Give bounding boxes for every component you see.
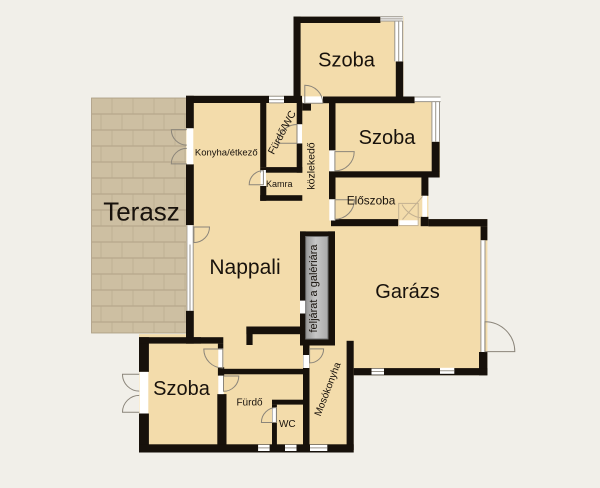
svg-text:WC: WC [279, 419, 296, 430]
svg-text:Szoba: Szoba [153, 378, 211, 400]
svg-text:Terasz: Terasz [103, 196, 180, 226]
svg-text:Szoba: Szoba [359, 127, 417, 149]
svg-text:Szoba: Szoba [318, 50, 376, 72]
svg-text:Nappali: Nappali [209, 256, 280, 279]
svg-text:Fürdő: Fürdő [236, 397, 263, 408]
svg-text:Garázs: Garázs [375, 281, 439, 303]
svg-text:közlekedő: közlekedő [306, 142, 318, 189]
svg-text:feljárat a galériára: feljárat a galériára [308, 244, 320, 333]
svg-text:Kamra: Kamra [266, 179, 293, 189]
svg-text:Előszoba: Előszoba [347, 193, 396, 207]
svg-text:Konyha/étkező: Konyha/étkező [195, 148, 258, 159]
